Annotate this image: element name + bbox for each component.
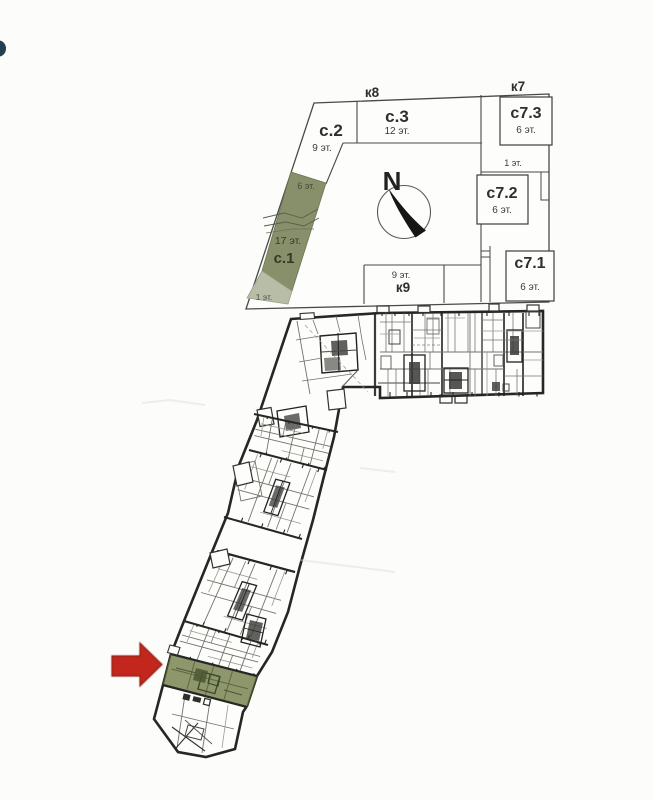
svg-text:N: N	[383, 166, 402, 196]
svg-text:17 эт.: 17 эт.	[275, 235, 301, 247]
svg-text:6 эт.: 6 эт.	[297, 181, 315, 191]
svg-text:6 эт.: 6 эт.	[520, 282, 539, 293]
svg-text:12 эт.: 12 эт.	[384, 126, 409, 137]
svg-text:к8: к8	[365, 85, 380, 100]
svg-text:6 эт.: 6 эт.	[516, 125, 535, 136]
svg-text:с.2: с.2	[319, 121, 343, 140]
svg-text:к9: к9	[396, 280, 410, 295]
svg-text:с.1: с.1	[274, 250, 295, 267]
svg-text:к7: к7	[511, 79, 525, 94]
svg-text:с7.3: с7.3	[510, 105, 541, 122]
svg-text:с7.1: с7.1	[514, 255, 545, 272]
svg-text:9 эт.: 9 эт.	[312, 143, 331, 154]
svg-text:1 эт.: 1 эт.	[256, 292, 273, 302]
svg-text:с.3: с.3	[385, 107, 409, 126]
svg-text:6 эт.: 6 эт.	[492, 205, 511, 216]
svg-text:1 эт.: 1 эт.	[504, 158, 522, 168]
svg-text:с7.2: с7.2	[486, 185, 517, 202]
